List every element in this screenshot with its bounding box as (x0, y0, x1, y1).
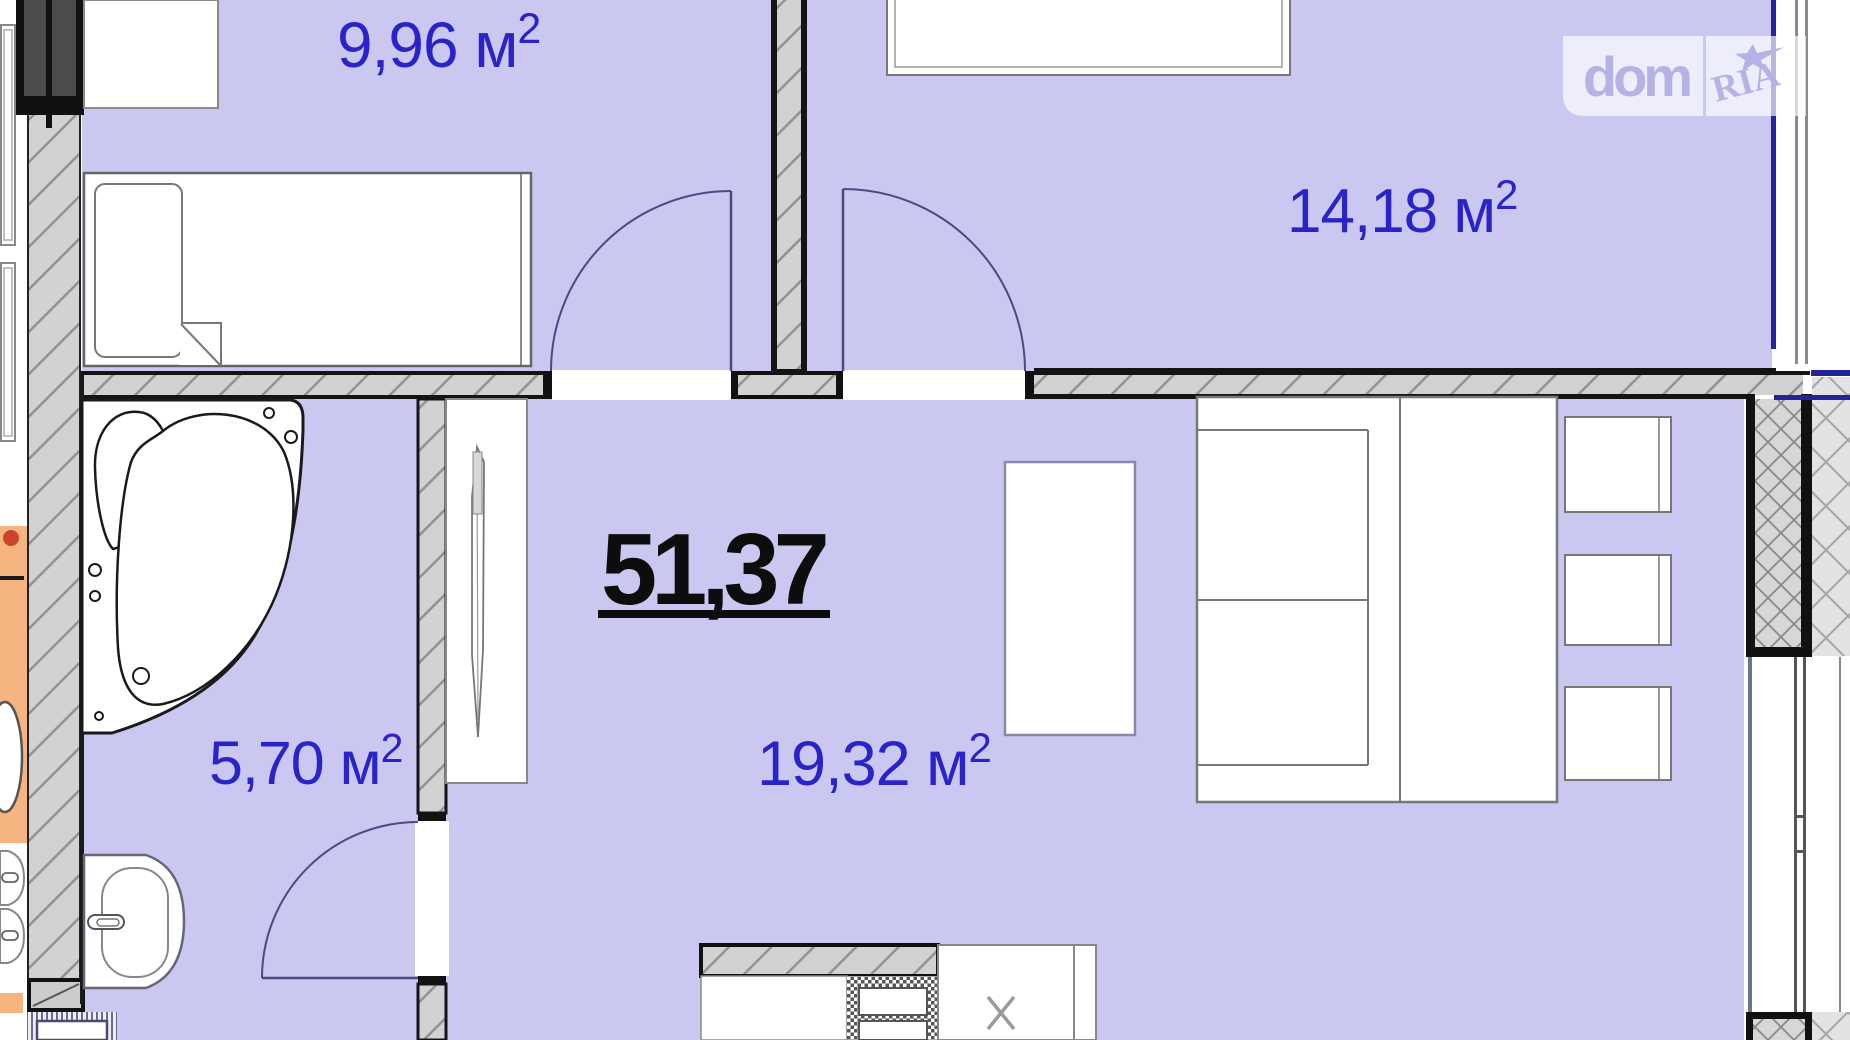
svg-text:dom: dom (1583, 45, 1690, 108)
svg-text:19,32 м2: 19,32 м2 (757, 724, 991, 799)
svg-text:9,96 м2: 9,96 м2 (337, 5, 540, 81)
svg-text:14,18 м2: 14,18 м2 (1287, 171, 1517, 246)
svg-text:51,37: 51,37 (601, 514, 826, 626)
svg-text:5,70 м2: 5,70 м2 (209, 725, 402, 797)
